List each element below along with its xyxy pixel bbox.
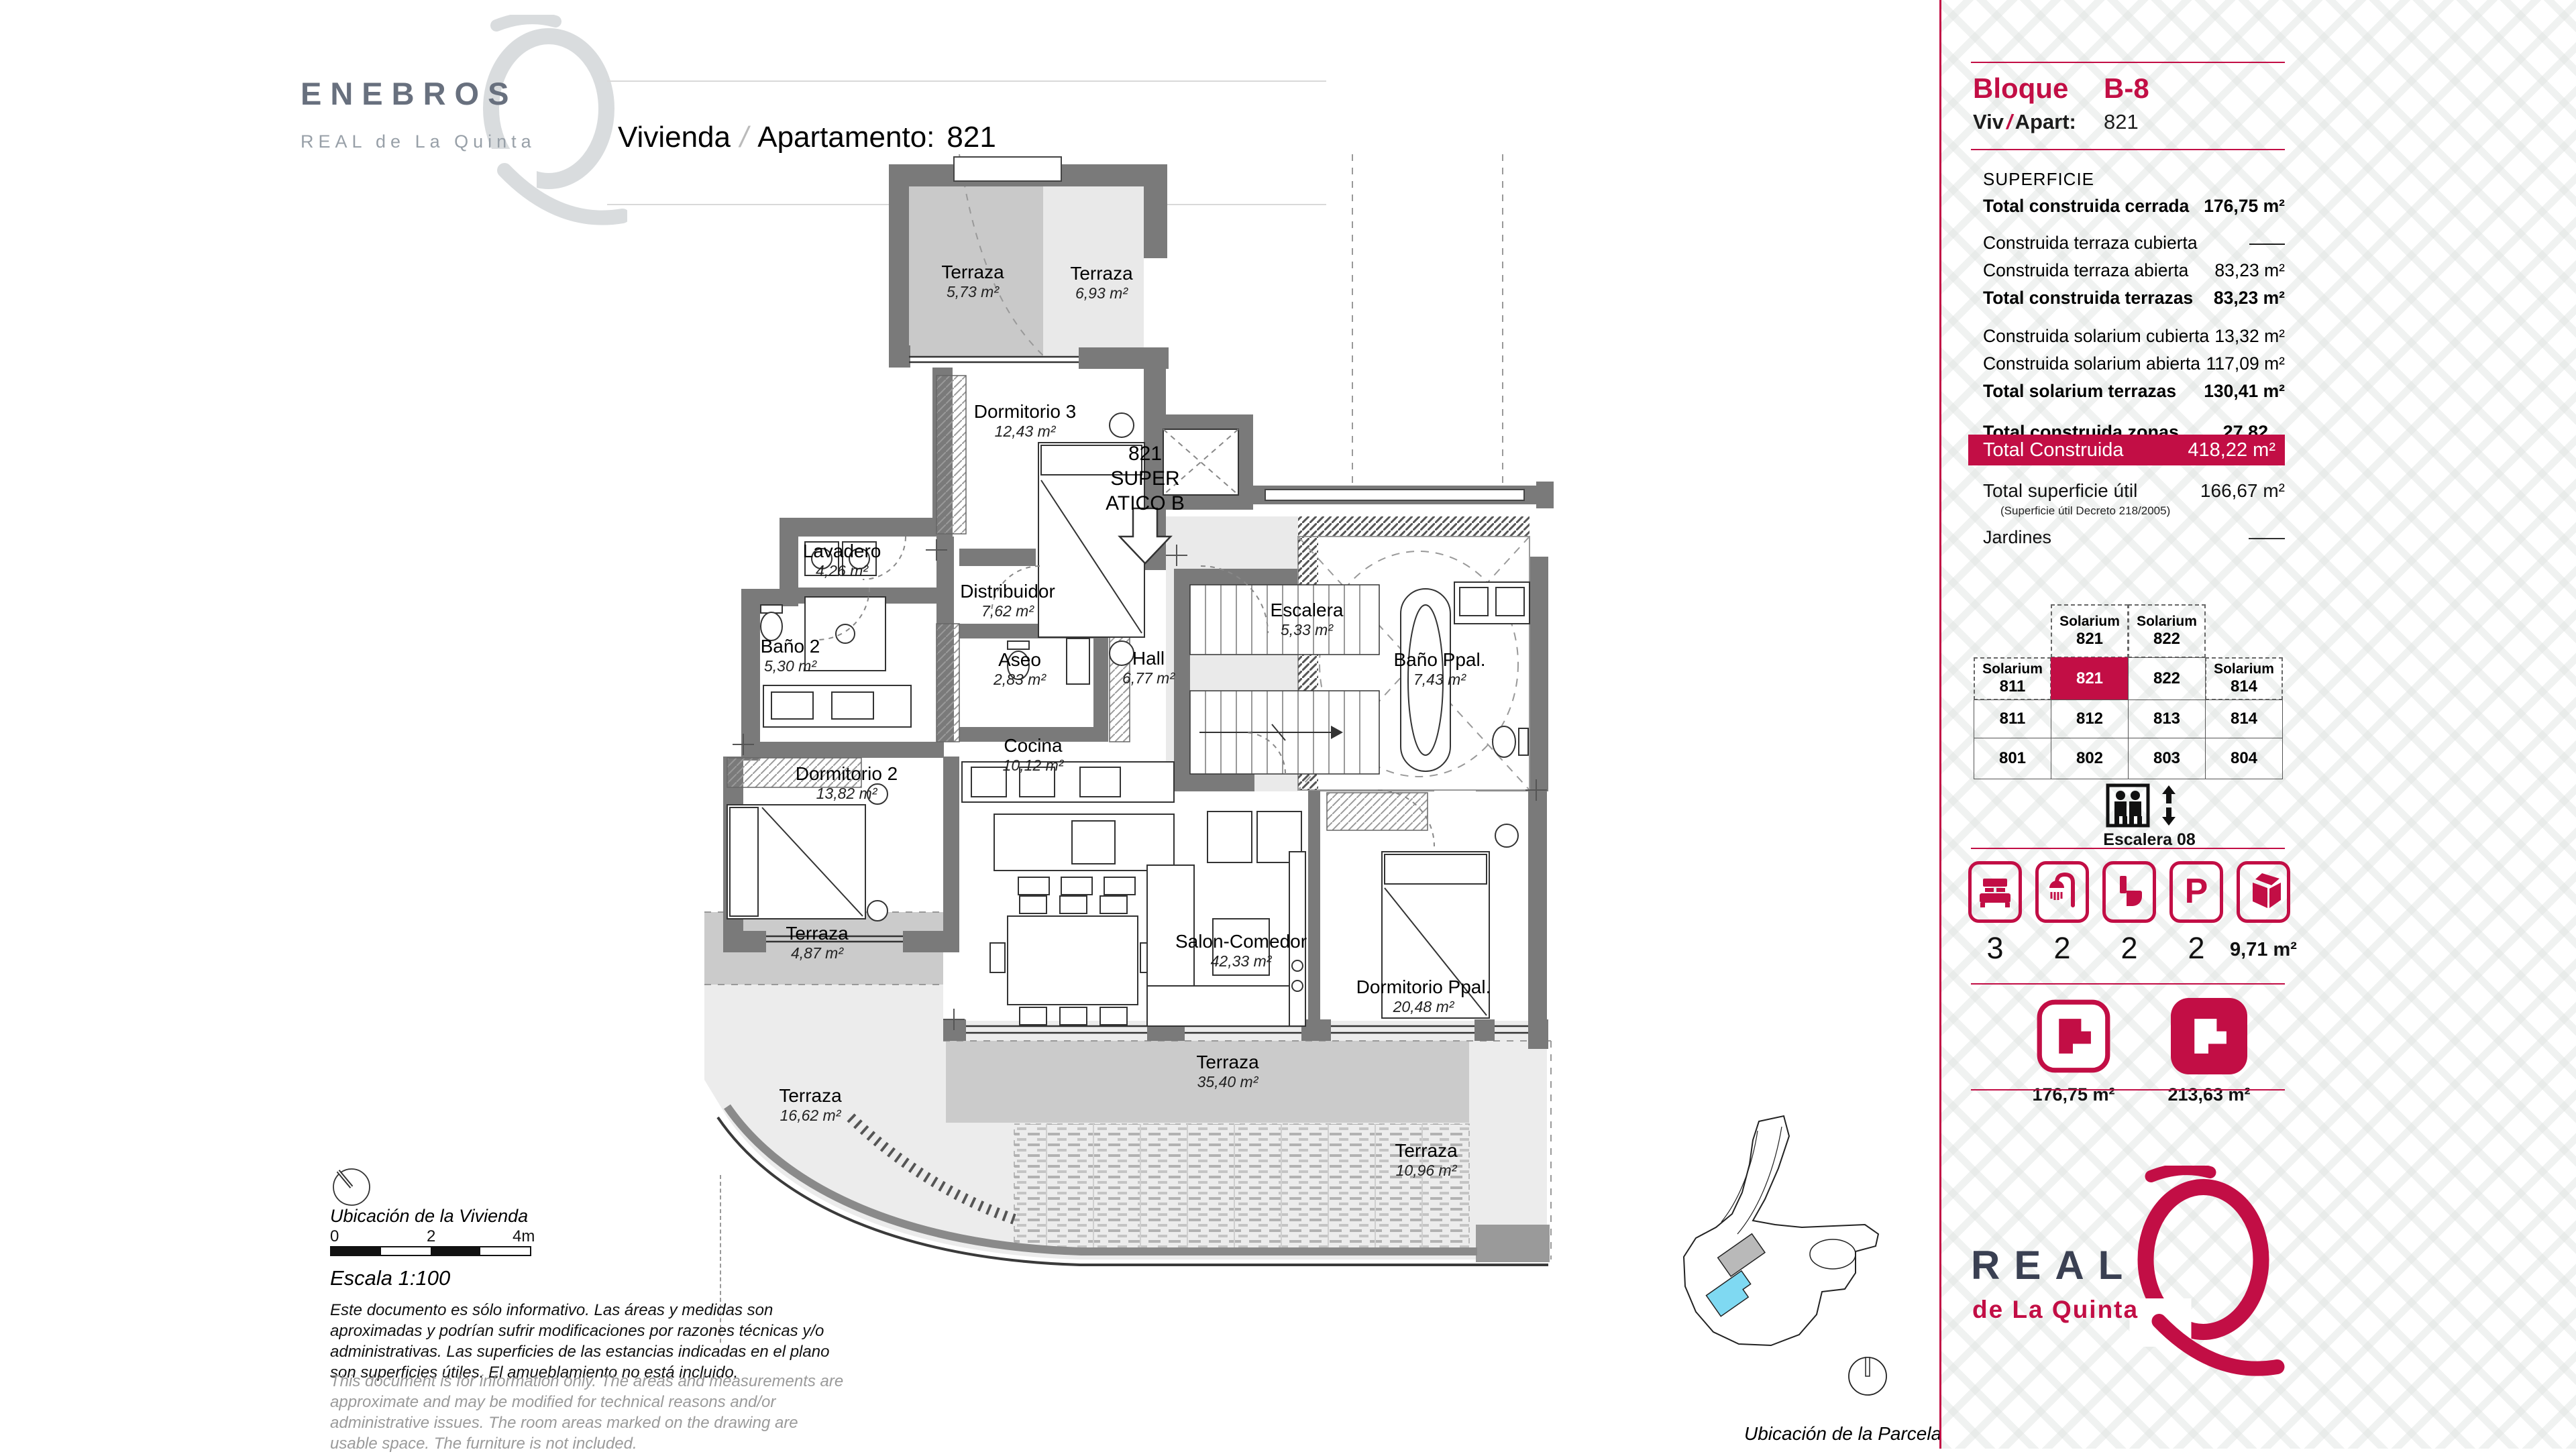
feature-value: 2 xyxy=(2096,931,2163,966)
total-construida-label: Total Construida xyxy=(1983,439,2124,461)
room-label-hall: Hall6,77 m² xyxy=(1122,648,1175,687)
grid-cell-empty xyxy=(1974,604,2051,658)
dining-table xyxy=(1008,916,1138,1005)
grid-cell-803: 803 xyxy=(2128,738,2206,779)
divider xyxy=(1971,848,2285,849)
unit-label-apart: Apart: xyxy=(2015,110,2076,133)
total-construida-bar: Total Construida 418,22 m² xyxy=(1968,435,2285,465)
atico-number: 821 xyxy=(1106,441,1185,466)
stairs-label: Escalera 08 xyxy=(2035,830,2263,850)
location-home-label: Ubicación de la Vivienda xyxy=(330,1206,528,1227)
superficie-row: Total construida cerrada176,75 m² xyxy=(1983,196,2285,217)
superficie-table: Total construida cerrada176,75 m²Constru… xyxy=(1983,196,2285,463)
room-label-dormitorio2: Dormitorio 213,82 m² xyxy=(796,763,898,803)
brand-name: ENEBROS xyxy=(301,75,517,112)
feature-icons-row: 322P29,71 m² xyxy=(1962,861,2297,966)
jardines-row: Jardines —— xyxy=(1983,527,2285,548)
plan-icon-area: 176,75 m² xyxy=(2021,1084,2127,1105)
scale-bar-segments xyxy=(330,1246,531,1256)
util-note: (Superficie útil Decreto 218/2005) xyxy=(2000,504,2170,518)
room-label-salon: Salon-Comedor42,33 m² xyxy=(1175,931,1307,970)
room-label-terraza_573: Terraza5,73 m² xyxy=(941,262,1004,301)
scale-ticks: 0 2 4m xyxy=(330,1227,531,1246)
toilet xyxy=(1493,726,1515,757)
storage-icon xyxy=(2237,861,2290,923)
room-label-dormitorio_ppal: Dormitorio Ppal.20,48 m² xyxy=(1356,976,1491,1016)
grid-cell-822: Solarium822 xyxy=(2128,604,2206,658)
room-label-terraza_1662: Terraza16,62 m² xyxy=(779,1085,841,1125)
elevator-icon xyxy=(2106,783,2186,831)
total-construida-value: 418,22 m² xyxy=(2188,439,2275,461)
toilet-icon xyxy=(2102,861,2156,923)
grid-cell-813: 813 xyxy=(2128,700,2206,738)
room-label-terraza_693: Terraza6,93 m² xyxy=(1070,263,1132,302)
sidebar: Bloque B-8 Viv/Apart: 821 SUPERFICIE Tot… xyxy=(1939,0,2576,1449)
atico-label: 821 SUPER ATICO B xyxy=(1106,441,1185,516)
superficie-util-row: Total superficie útil 166,67 m² xyxy=(1983,480,2285,502)
room-label-lavadero: Lavadero4,26 m² xyxy=(803,541,881,580)
feature-value: 2 xyxy=(2029,931,2096,966)
scale-tick-2: 2 xyxy=(427,1227,435,1246)
title-separator: / xyxy=(731,121,757,154)
superficie-row: Construida terraza abierta83,23 m² xyxy=(1983,260,2285,281)
plan-icon-area: 213,63 m² xyxy=(2156,1084,2262,1105)
superficie-title: SUPERFICIE xyxy=(1983,169,2094,190)
room-label-distribuidor: Distribuidor7,62 m² xyxy=(960,581,1055,620)
block-value: B-8 xyxy=(2104,72,2149,105)
grid-cell-804: 804 xyxy=(2205,738,2283,779)
title-apartamento: Apartamento: xyxy=(757,121,934,154)
title-vivienda: Vivienda xyxy=(618,121,731,154)
feature-value: 9,71 m² xyxy=(2230,939,2297,961)
divider xyxy=(1971,62,2285,63)
grid-cell-811: 811 xyxy=(1974,700,2051,738)
grid-cell-801: 801 xyxy=(1974,738,2051,779)
svg-text:P: P xyxy=(2185,872,2208,911)
feature-bed: 3 xyxy=(1962,861,2029,966)
scale-bar: 0 2 4m xyxy=(330,1227,531,1256)
grid-cell-814: 814 xyxy=(2205,700,2283,738)
room-label-terraza_3540: Terraza35,40 m² xyxy=(1196,1052,1258,1091)
superficie-row: Total construida terrazas83,23 m² xyxy=(1983,288,2285,309)
feature-shower: 2 xyxy=(2029,861,2096,966)
parcel-compass-icon xyxy=(1849,1357,1886,1395)
grid-cell-802: 802 xyxy=(2051,738,2129,779)
divider xyxy=(1971,1089,2285,1090)
room-label-bano2: Baño 25,30 m² xyxy=(761,636,820,675)
room-label-cocina: Cocina10,12 m² xyxy=(1003,735,1064,775)
logo-de-la-quinta: de La Quinta xyxy=(1972,1296,2139,1324)
parcel-outline xyxy=(1684,1116,1878,1345)
logo-real: REAL xyxy=(1971,1242,2137,1288)
unit-slash: / xyxy=(2004,110,2015,133)
room-label-terraza_1096: Terraza10,96 m² xyxy=(1395,1140,1457,1180)
block-label: Bloque xyxy=(1973,72,2068,105)
util-label: Total superficie útil xyxy=(1983,480,2137,502)
util-value: 166,67 m² xyxy=(2200,480,2285,502)
grid-cell-821: Solarium821 xyxy=(2051,604,2129,658)
grid-cell-821: 821 xyxy=(2051,657,2129,700)
building-grid: Solarium821Solarium822Solarium811821822S… xyxy=(1974,605,2283,779)
grid-cell-812: 812 xyxy=(2051,700,2129,738)
scale-label: Escala 1:100 xyxy=(330,1266,450,1290)
feature-value: 3 xyxy=(1962,931,2029,966)
superficie-row: Construida solarium abierta117,09 m² xyxy=(1983,353,2285,374)
scale-tick-0: 0 xyxy=(330,1227,339,1246)
disclaimer-en: This document is for information only. T… xyxy=(330,1371,848,1454)
feature-storage: 9,71 m² xyxy=(2230,861,2297,966)
title-apartment-number: 821 xyxy=(934,121,996,154)
brand-subtitle: REAL de La Quinta xyxy=(301,131,536,152)
room-label-aseo: Aseo2,83 m² xyxy=(994,649,1046,689)
unit-value: 821 xyxy=(2104,110,2139,134)
divider xyxy=(1971,983,2285,985)
top-notch xyxy=(954,157,1061,181)
grid-cell-811: Solarium811 xyxy=(1974,657,2051,700)
unit-label-viv: Viv xyxy=(1973,110,2004,133)
divider xyxy=(1971,149,2285,150)
unit-label: Viv/Apart: xyxy=(1973,110,2076,134)
compass-icon xyxy=(330,1164,373,1211)
jardines-value: —— xyxy=(2249,527,2285,548)
grid-cell-empty xyxy=(2205,604,2283,658)
atico-b: ATICO B xyxy=(1106,491,1185,516)
sheet-title: Vivienda/Apartamento:821 xyxy=(618,121,996,154)
superficie-row: Total solarium terrazas130,41 m² xyxy=(1983,381,2285,402)
grid-cell-814: Solarium814 xyxy=(2205,657,2283,700)
superficie-row: Construida solarium cubierta13,32 m² xyxy=(1983,326,2285,347)
upper-window xyxy=(1265,490,1524,500)
room-label-terraza_487: Terraza4,87 m² xyxy=(786,923,848,962)
scale-tick-4m: 4m xyxy=(513,1227,535,1246)
room-label-dormitorio3: Dormitorio 312,43 m² xyxy=(974,401,1076,441)
floor-plan: 821 SUPER ATICO B Terraza5,73 m²Terraza6… xyxy=(704,154,1576,1341)
jardines-label: Jardines xyxy=(1983,527,2051,548)
brand-q-logo-icon xyxy=(470,15,627,243)
feature-parking: P2 xyxy=(2163,861,2230,966)
feature-toilet: 2 xyxy=(2096,861,2163,966)
shower-icon xyxy=(2035,861,2089,923)
room-label-escalera: Escalera5,33 m² xyxy=(1271,600,1344,639)
parking-icon: P xyxy=(2169,861,2223,923)
grid-cell-822: 822 xyxy=(2128,657,2206,700)
superficie-row: Construida terraza cubierta—— xyxy=(1983,233,2285,254)
bed-icon xyxy=(1968,861,2022,923)
room-label-bano_ppal: Baño Ppal.7,43 m² xyxy=(1394,649,1486,689)
atico-super: SUPER xyxy=(1106,466,1185,491)
feature-value: 2 xyxy=(2163,931,2230,966)
location-parcel-label: Ubicación de la Parcela xyxy=(1744,1423,1941,1445)
parcel-map xyxy=(1657,1113,1939,1418)
